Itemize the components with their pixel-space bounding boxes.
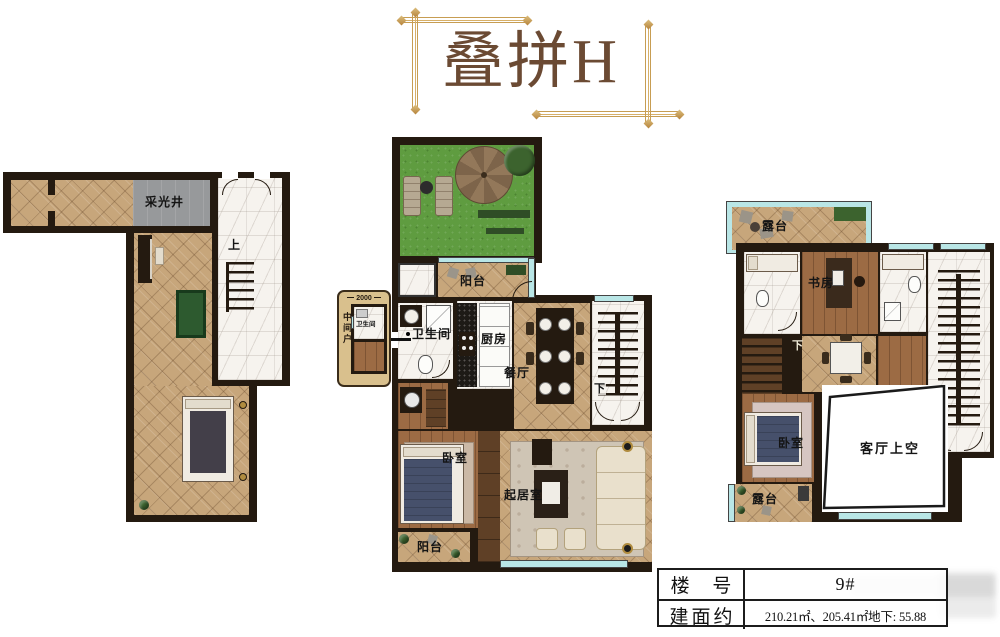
window-strip <box>594 295 634 302</box>
stair-rail <box>615 314 620 394</box>
chair-icon <box>864 352 871 364</box>
nightstand-icon <box>239 473 247 481</box>
balcony-bottom-label: 阳台 <box>417 541 443 553</box>
stairs-down-label: 下 <box>594 384 606 395</box>
lounger-icon <box>435 176 453 216</box>
chair-icon <box>840 334 852 341</box>
shoe-cabinet <box>426 389 446 427</box>
bed-blanket <box>190 411 226 473</box>
game-table-icon <box>830 342 862 374</box>
sofa-icon <box>596 446 646 550</box>
living-label: 起居室 <box>504 489 543 501</box>
frame-diamond-icon <box>411 105 421 115</box>
upper-hallway-wood-floor <box>878 336 926 392</box>
floor-area-header: 建面约 <box>659 601 745 629</box>
table-icon <box>750 222 760 232</box>
dining-chair <box>526 322 534 335</box>
light-well-label: 采光井 <box>145 196 184 208</box>
door-opening <box>254 172 270 179</box>
plant-icon <box>451 549 460 558</box>
bed-pillow <box>746 415 755 463</box>
storage-closet <box>398 263 436 297</box>
kitchen-label: 厨房 <box>481 333 507 345</box>
bed-pillow <box>185 399 231 409</box>
window-strip <box>838 512 932 520</box>
toilet-icon <box>756 290 769 307</box>
inset-fixture <box>356 309 368 318</box>
page-title: 叠拼H <box>424 28 638 96</box>
toilet-icon <box>908 276 921 293</box>
window-strip <box>940 243 986 250</box>
dining-chair <box>576 352 584 365</box>
side-table-icon <box>622 543 633 554</box>
floorplan-sheet: 叠拼H 采光井 上 阳台 卫生间 <box>0 0 1000 637</box>
middle-unit-inset: 2000 中间户 卫生间 <box>337 290 391 387</box>
nightstand-icon <box>239 401 247 409</box>
stair-rail <box>226 262 229 312</box>
building-number-value: 9# <box>745 570 946 601</box>
chair-icon <box>822 352 829 364</box>
stove-icon <box>459 332 475 356</box>
basement-wall-stub <box>48 180 55 195</box>
bed-mattress <box>404 459 452 521</box>
single-bed-icon <box>882 254 924 270</box>
burner <box>469 346 473 350</box>
grill-icon <box>420 181 433 194</box>
planter-box <box>834 207 866 221</box>
armchair-icon <box>536 528 558 550</box>
dining-chair <box>526 352 534 365</box>
side-table-icon <box>622 441 633 452</box>
piano-keys <box>150 239 152 279</box>
title-frame-top-line <box>403 17 527 23</box>
tree-icon <box>504 145 535 176</box>
burner <box>462 346 466 350</box>
planter-box <box>486 228 524 234</box>
middle-bedroom-label: 卧室 <box>442 452 468 464</box>
info-table: 楼 号 9# 建面约 210.21㎡、205.41㎡地下: 55.88 <box>657 568 948 627</box>
stair-rail <box>956 274 961 424</box>
inset-window <box>351 316 354 329</box>
piano-bench <box>155 247 164 265</box>
coffee-table-top <box>542 482 560 504</box>
washer-door <box>404 392 420 408</box>
toilet-icon <box>418 355 433 374</box>
billiard-table-icon <box>176 290 206 338</box>
tv-cabinet-icon <box>532 439 552 465</box>
plant-icon <box>737 506 745 514</box>
window-strip <box>500 560 628 568</box>
desk-chair-icon <box>854 276 865 287</box>
door-opening <box>222 172 238 179</box>
staircase-icon <box>228 262 254 312</box>
armchair-icon <box>564 528 586 550</box>
bed-pillow <box>748 256 758 270</box>
basement-corridor-floor <box>11 180 133 226</box>
wardrobe-icon <box>478 431 500 562</box>
shower-icon <box>884 302 901 321</box>
upper-bedroom-label: 卧室 <box>778 437 804 449</box>
title-frame-left-line <box>412 13 418 109</box>
plant-icon <box>139 500 149 510</box>
lounger-icon <box>403 176 421 216</box>
living-void-label: 客厅上空 <box>860 442 920 455</box>
title-frame-bottom-line <box>537 111 681 117</box>
title-frame-right-line <box>645 25 651 124</box>
frame-diamond-icon <box>644 119 654 129</box>
terrace-top-label: 露台 <box>762 220 788 232</box>
dining-chair <box>576 322 584 335</box>
planter-box <box>798 486 809 501</box>
burner <box>462 336 466 340</box>
balcony-top-label: 阳台 <box>460 275 486 287</box>
basement-wall-stub <box>48 211 55 226</box>
upper-stairs-down-label: 下 <box>792 341 804 352</box>
frame-diamond-icon <box>675 110 685 120</box>
plant-icon <box>737 486 746 495</box>
terrace-bottom-label: 露台 <box>752 493 778 505</box>
building-number-header: 楼 号 <box>659 570 745 601</box>
study-label: 书房 <box>808 277 834 289</box>
inset-bathroom-label: 卫生间 <box>356 318 376 328</box>
dining-label: 餐厅 <box>504 367 530 379</box>
inset-stair <box>354 342 384 371</box>
planter-box <box>478 210 530 218</box>
cushion-icon <box>761 505 772 516</box>
chair-icon <box>840 376 852 383</box>
inset-dimension-label: 2000 <box>339 295 389 302</box>
window-strip <box>888 243 934 250</box>
plant-icon <box>399 534 409 544</box>
bathroom-label: 卫生间 <box>406 328 451 340</box>
floor-area-value: 210.21㎡、205.41㎡地下: 55.88 <box>745 601 946 629</box>
dining-table-icon <box>536 308 574 404</box>
burner <box>469 336 473 340</box>
stairs-up-label: 上 <box>228 239 241 251</box>
window-strip <box>728 484 735 522</box>
planter-box <box>506 265 526 275</box>
frame-diamond-icon <box>523 16 533 26</box>
sink-icon <box>404 309 419 324</box>
